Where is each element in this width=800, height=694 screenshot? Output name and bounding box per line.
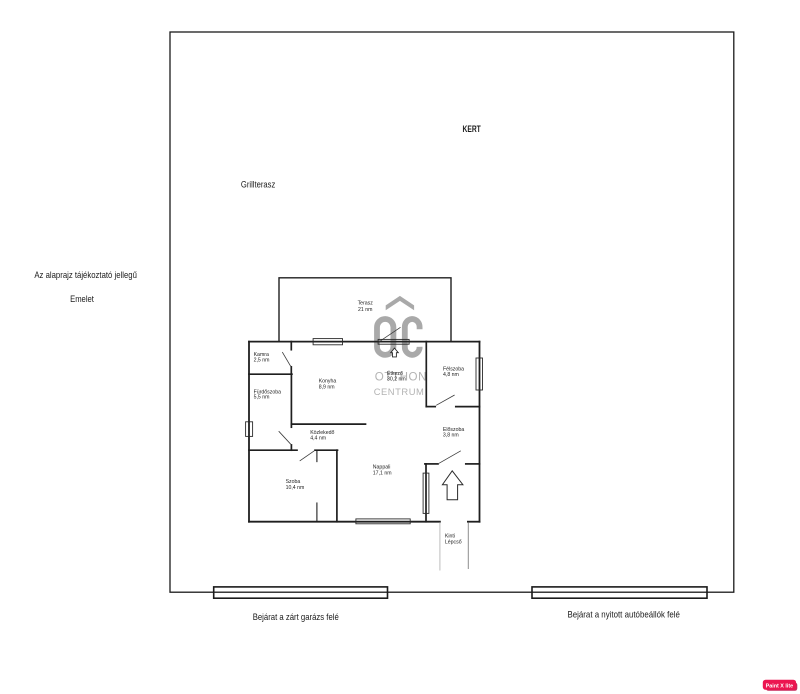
svg-text:2,5 nm: 2,5 nm xyxy=(254,357,270,363)
svg-text:Paint X lite: Paint X lite xyxy=(766,683,794,689)
svg-text:5,5 nm: 5,5 nm xyxy=(254,395,270,401)
svg-text:21 nm: 21 nm xyxy=(358,307,372,313)
svg-text:8,9 nm: 8,9 nm xyxy=(319,384,335,390)
svg-text:Bejárat a nyitott autóbeállók: Bejárat a nyitott autóbeállók felé xyxy=(568,609,680,619)
svg-text:30,2 nm: 30,2 nm xyxy=(387,376,406,382)
svg-text:CENTRUM: CENTRUM xyxy=(374,386,425,397)
svg-text:Terasz: Terasz xyxy=(358,300,374,306)
svg-text:Az alaprajz tájékoztató jelleg: Az alaprajz tájékoztató jellegű xyxy=(34,270,136,280)
svg-text:4,4 nm: 4,4 nm xyxy=(310,435,326,441)
svg-text:KERT: KERT xyxy=(463,124,482,134)
svg-text:10,4 nm: 10,4 nm xyxy=(286,485,305,491)
svg-text:4,8 nm: 4,8 nm xyxy=(443,372,459,378)
svg-text:Grillterasz: Grillterasz xyxy=(241,179,276,189)
svg-text:3,8 nm: 3,8 nm xyxy=(443,433,459,439)
svg-text:17,1 nm: 17,1 nm xyxy=(373,470,392,476)
svg-text:Emelet: Emelet xyxy=(70,294,94,304)
svg-text:Bejárat a zárt garázs felé: Bejárat a zárt garázs felé xyxy=(253,612,339,622)
svg-text:Lépcső: Lépcső xyxy=(445,540,462,546)
